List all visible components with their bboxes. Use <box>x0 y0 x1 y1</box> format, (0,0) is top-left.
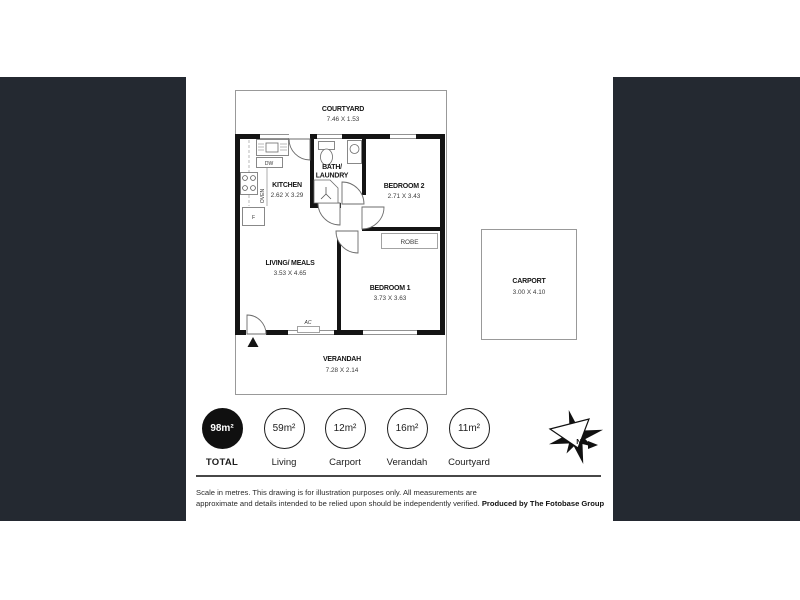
courtyard-area-circle: 11m² <box>449 408 490 449</box>
svg-text:N: N <box>576 437 581 446</box>
verandah-name: VERANDAH <box>323 356 361 363</box>
carport-area-circle: 12m² <box>325 408 366 449</box>
area-verandah: 16m² Verandah <box>376 408 438 468</box>
toilet <box>321 149 333 165</box>
living-area-circle: 59m² <box>264 408 305 449</box>
disclaimer-line2: approximate and details intended to be r… <box>196 499 480 508</box>
area-courtyard: 11m² Courtyard <box>438 408 500 468</box>
verandah-area-circle: 16m² <box>387 408 428 449</box>
total-area-label: TOTAL <box>191 457 253 468</box>
cooktop <box>241 173 258 195</box>
area-total: 98m² TOTAL <box>191 408 253 468</box>
disclaimer-text: Scale in metres. This drawing is for ill… <box>196 487 608 509</box>
area-living: 59m² Living <box>253 408 315 468</box>
verandah-dims: 7.28 X 2.14 <box>326 367 359 374</box>
sink-bowl <box>266 143 278 152</box>
dishwasher-label: DW <box>265 161 274 167</box>
courtyard-dims: 7.46 X 1.53 <box>327 116 360 123</box>
carport-name: CARPORT <box>512 278 546 285</box>
total-area-circle: 98m² <box>202 408 243 449</box>
fridge-label: F <box>252 215 255 221</box>
living-area-label: Living <box>253 457 315 468</box>
disclaimer-line1: Scale in metres. This drawing is for ill… <box>196 488 477 497</box>
bedroom2-dims: 2.71 X 3.43 <box>388 193 421 200</box>
carport-dims: 3.00 X 4.10 <box>513 289 546 296</box>
courtyard-name: COURTYARD <box>322 106 364 113</box>
robe-label: ROBE <box>400 239 418 246</box>
ac-unit <box>298 327 320 333</box>
bath-name-line2: LAUNDRY <box>316 173 349 180</box>
toilet-cistern <box>319 142 335 150</box>
ac-label: AC <box>304 320 312 326</box>
floorplan-page: DW OVEN F ROBE AC <box>0 0 800 600</box>
basin <box>350 145 359 154</box>
kitchen-name: KITCHEN <box>272 182 302 189</box>
kitchen-dims: 2.62 X 3.29 <box>271 192 304 199</box>
living-dims: 3.53 X 4.65 <box>274 270 307 277</box>
bedroom1-name: BEDROOM 1 <box>370 285 411 292</box>
area-carport: 12m² Carport <box>314 408 376 468</box>
courtyard-area-label: Courtyard <box>438 457 500 468</box>
verandah-area-label: Verandah <box>376 457 438 468</box>
oven-label: OVEN <box>260 189 266 204</box>
bedroom2-name: BEDROOM 2 <box>384 183 425 190</box>
living-name: LIVING/ MEALS <box>265 260 315 267</box>
floorplan-drawing: DW OVEN F ROBE AC <box>0 0 800 600</box>
bath-name-line1: BATH/ <box>322 164 342 171</box>
carport-area-label: Carport <box>314 457 376 468</box>
produced-by-brand: Produced by The Fotobase Group <box>482 499 604 508</box>
compass-icon: N <box>542 403 611 472</box>
footer-divider <box>196 475 601 477</box>
bedroom1-dims: 3.73 X 3.63 <box>374 295 407 302</box>
